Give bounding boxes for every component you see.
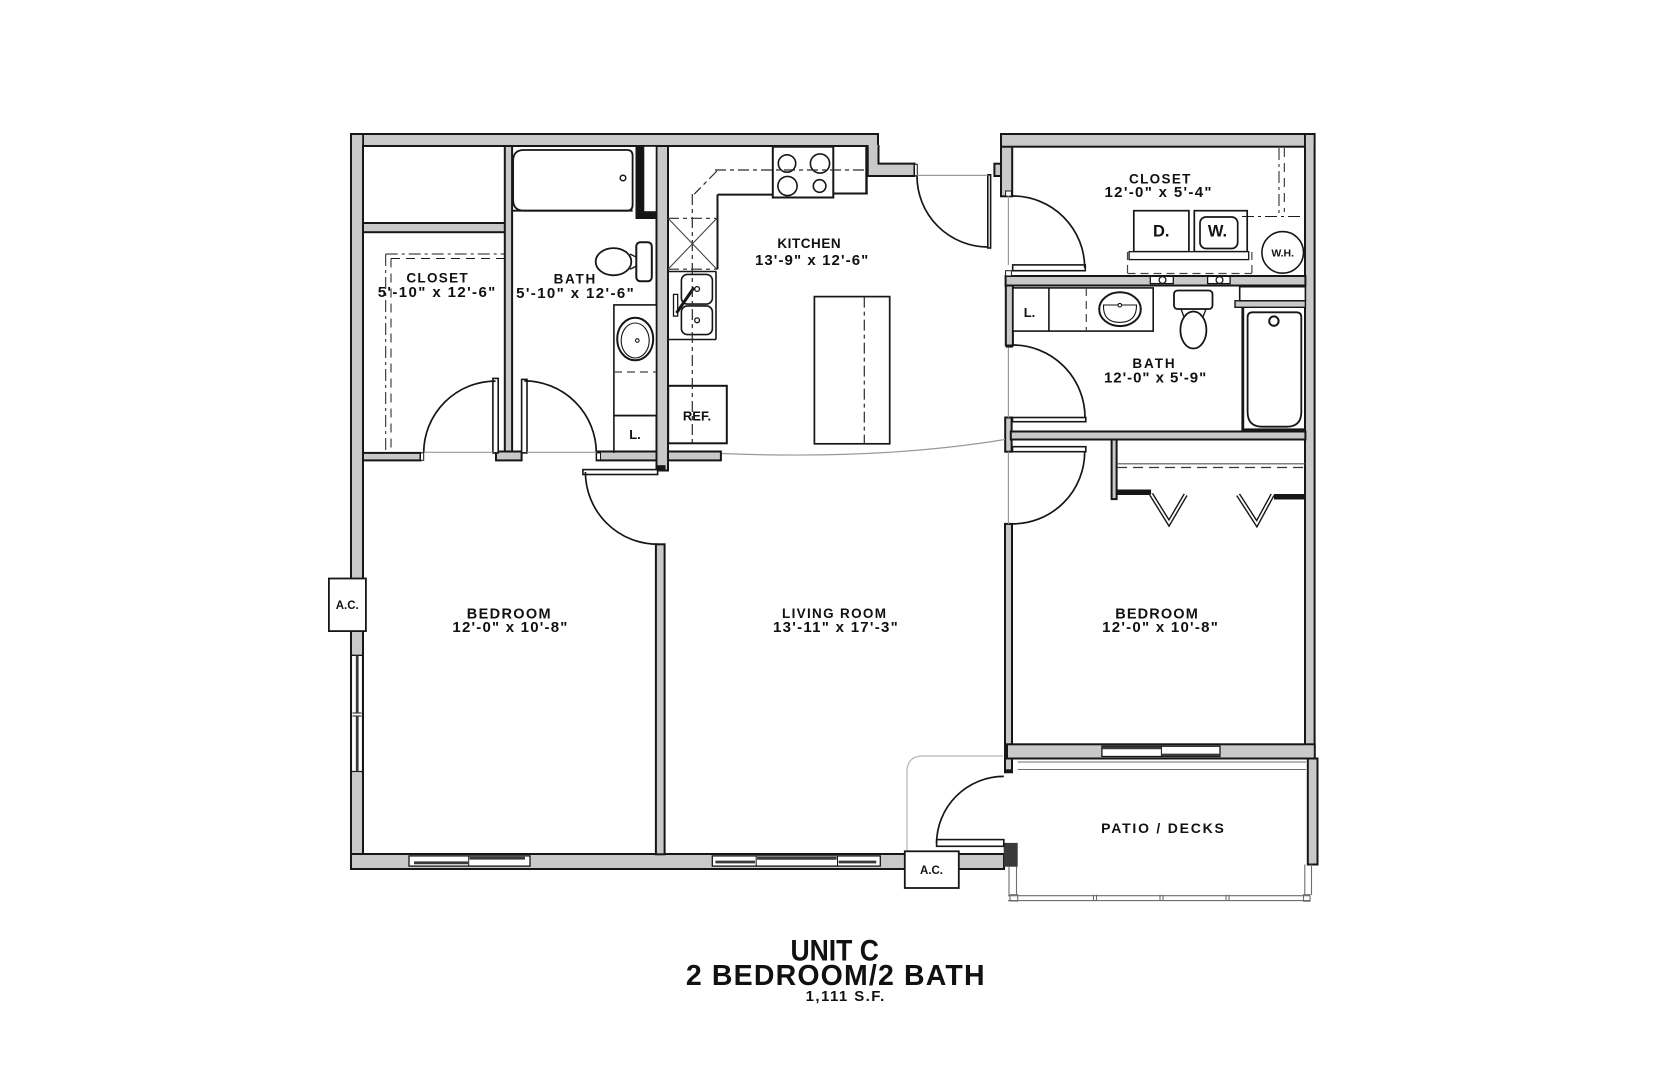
svg-text:D.: D. xyxy=(1153,223,1170,241)
svg-text:A.C.: A.C. xyxy=(336,600,359,612)
svg-text:5'-10" x 12'-6": 5'-10" x 12'-6" xyxy=(516,285,634,302)
svg-text:5'-10" x 12'-6": 5'-10" x 12'-6" xyxy=(378,284,496,301)
svg-text:13'-9" x 12'-6": 13'-9" x 12'-6" xyxy=(755,252,868,269)
svg-text:PATIO / DECKS: PATIO / DECKS xyxy=(1101,820,1224,836)
svg-text:KITCHEN: KITCHEN xyxy=(777,236,840,251)
svg-text:REF.: REF. xyxy=(683,408,711,423)
svg-text:1,111 S.F.: 1,111 S.F. xyxy=(806,988,885,1005)
svg-text:W.: W. xyxy=(1208,223,1227,241)
svg-text:W.H.: W.H. xyxy=(1271,248,1294,260)
svg-text:12'-0" x 5'-4": 12'-0" x 5'-4" xyxy=(1105,184,1212,201)
svg-text:12'-0" x 10'-8": 12'-0" x 10'-8" xyxy=(452,619,567,636)
svg-text:12'-0" x 5'-9": 12'-0" x 5'-9" xyxy=(1104,370,1206,387)
svg-text:A.C.: A.C. xyxy=(920,865,943,877)
svg-text:13'-11" x 17'-3": 13'-11" x 17'-3" xyxy=(773,619,898,636)
svg-text:L.: L. xyxy=(1024,305,1036,320)
svg-text:12'-0" x 10'-8": 12'-0" x 10'-8" xyxy=(1102,619,1218,636)
svg-text:L.: L. xyxy=(629,427,641,442)
